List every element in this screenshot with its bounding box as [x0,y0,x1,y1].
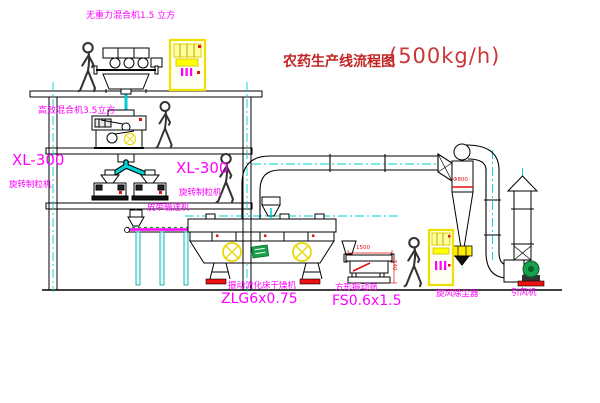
floor3-slab [46,203,252,209]
exhaust-stack [508,176,537,260]
dryer-logo-plate [251,245,268,258]
gravity-free-mixer [94,48,162,112]
cabinet-text-marks [181,68,192,76]
belt-conveyor [125,209,198,285]
operator-figure-ground [405,238,421,286]
vibrating-screen [342,241,397,283]
cyclone-separator [452,144,473,265]
operator-figure-floor3 [217,154,233,202]
control-cabinet-1 [170,40,205,90]
rotary-granulator-1 [92,170,128,200]
control-cabinet-2 [429,230,453,285]
cabinet2-text-marks [435,261,446,270]
floor2-slab [46,148,252,154]
process-line-drawing [0,0,600,403]
high-efficiency-mixer [92,110,146,148]
flow-diagram-canvas: 农药生产线流程图 (500kg/h) 无重力混合机1.5 立方 高效混合机3.5… [0,0,600,403]
operator-figure-floor2 [156,102,172,148]
fluid-bed-dryer [188,214,336,284]
induced-draft-fan [504,260,544,286]
y-feed-pipe [110,154,150,176]
cyclone-outlet-elbow [454,144,470,160]
operator-figure-roof [79,43,95,91]
rotary-granulator-2 [132,170,168,200]
left-column [49,97,57,290]
